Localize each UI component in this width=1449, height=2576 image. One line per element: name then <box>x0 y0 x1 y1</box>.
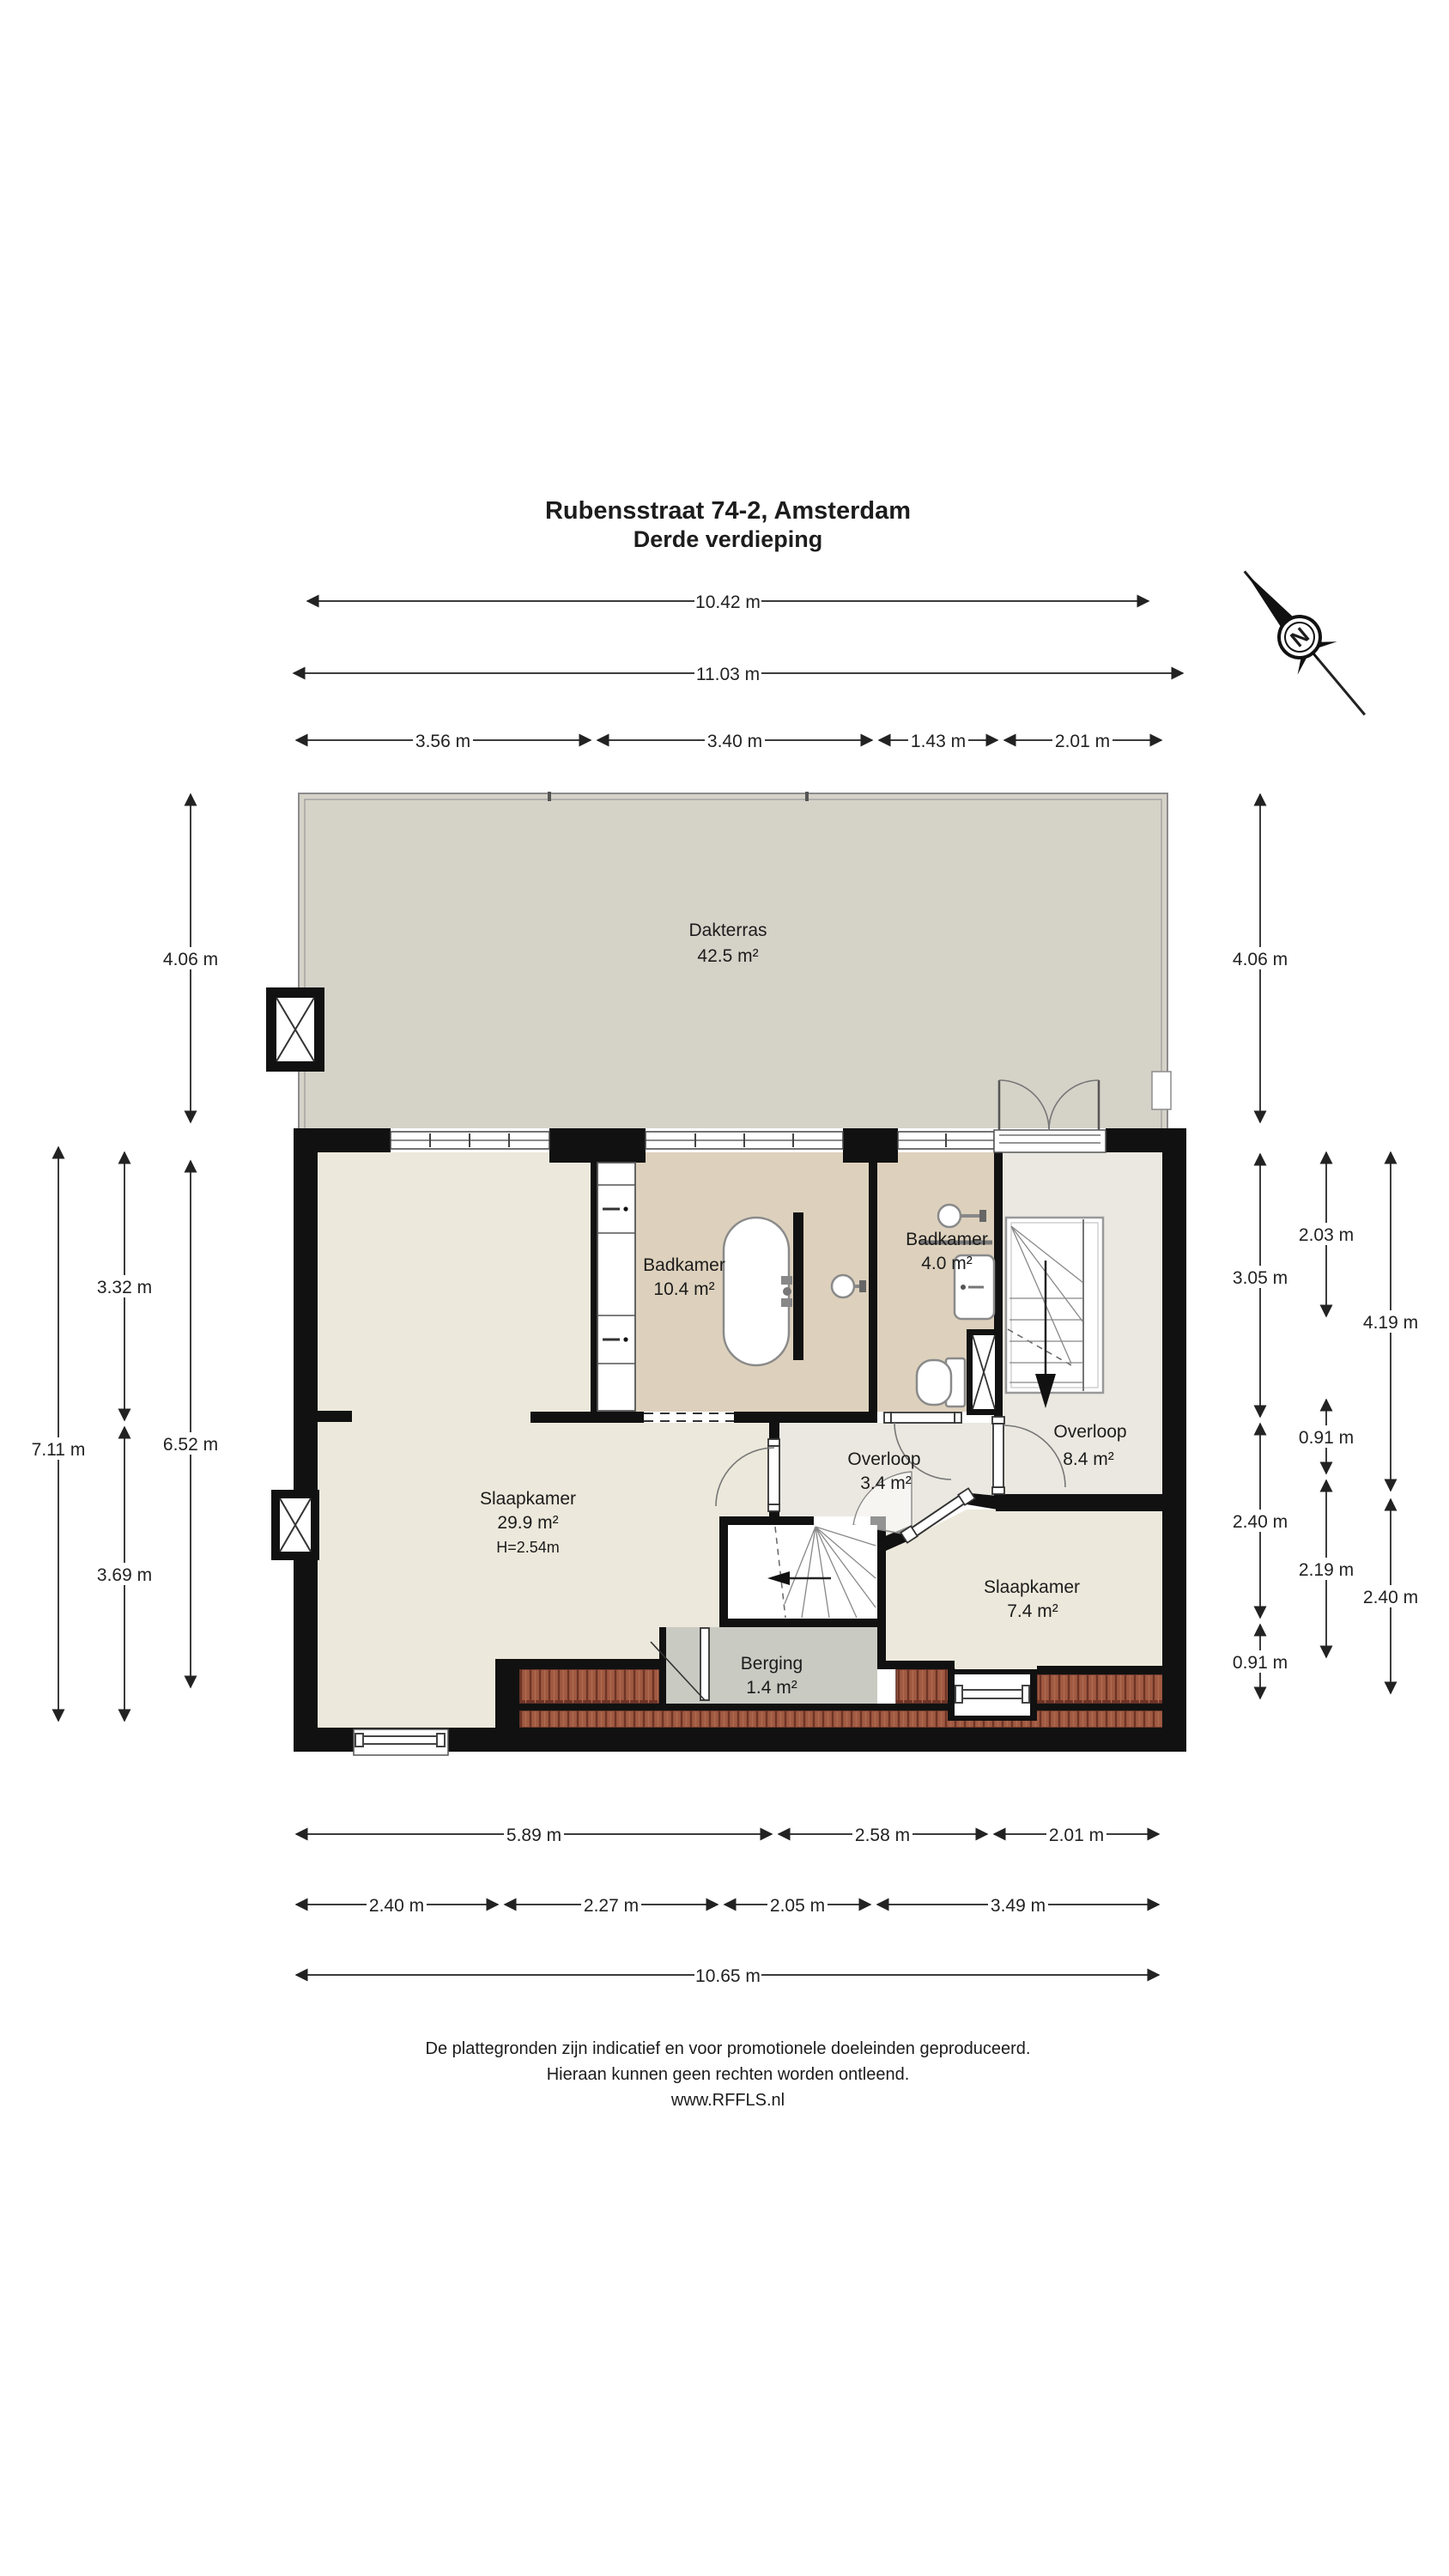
winder-stairs-icon <box>728 1525 877 1619</box>
dim-right-r1c: 0.91 m <box>1233 1653 1288 1673</box>
disclaimer-line2: Hieraan kunnen geen rechten worden ontle… <box>547 2065 910 2084</box>
dim-bottom-a2: 2.58 m <box>855 1826 910 1845</box>
badkamer-klein-label: Badkamer <box>906 1230 988 1249</box>
skylight-icon <box>266 987 324 1072</box>
floorplan-svg: Rubensstraat 74-2, Amsterdam Derde verdi… <box>0 0 1449 2576</box>
open-passage-dashed <box>644 1412 734 1423</box>
compass-north-icon: N <box>1225 555 1385 732</box>
dimensions-top: 10.42 m 11.03 m 3.56 m 3.40 m 1.43 m 2.0… <box>294 590 1183 751</box>
dim-bottom-b4: 3.49 m <box>991 1896 1046 1916</box>
dim-top-seg4: 2.01 m <box>1055 732 1110 751</box>
badkamer-groot-label: Badkamer <box>643 1255 725 1275</box>
badkamer-klein-area: 4.0 m² <box>921 1254 973 1273</box>
disclaimer: De plattegronden zijn indicatief en voor… <box>426 2039 1031 2110</box>
dim-right-terras: 4.06 m <box>1233 950 1288 969</box>
dim-left-totaal: 7.11 m <box>32 1440 86 1460</box>
dim-top-seg1: 3.56 m <box>415 732 470 751</box>
slaapkamer-groot-label: Slaapkamer <box>480 1489 576 1509</box>
dakterras-label: Dakterras <box>688 920 767 940</box>
dim-top-seg3: 1.43 m <box>911 732 966 751</box>
dim-right-r3a: 4.19 m <box>1363 1313 1418 1333</box>
toilet-icon <box>917 1358 965 1406</box>
dim-right-r3b: 2.40 m <box>1363 1588 1418 1607</box>
dim-top-seg2: 3.40 m <box>707 732 762 751</box>
slaapkamer-klein-area: 7.4 m² <box>1007 1601 1058 1621</box>
dim-bottom-b2: 2.27 m <box>584 1896 639 1916</box>
overloop-groot-label: Overloop <box>1053 1422 1126 1442</box>
dim-right-r2c: 2.19 m <box>1299 1560 1354 1580</box>
dim-right-r1b: 2.40 m <box>1233 1512 1288 1532</box>
railing-post <box>805 792 809 801</box>
title-address: Rubensstraat 74-2, Amsterdam <box>545 497 911 525</box>
dimensions-bottom: 5.89 m 2.58 m 2.01 m 2.40 m 2.27 m 2.05 … <box>296 1823 1159 1986</box>
dim-right-r2b: 0.91 m <box>1299 1428 1354 1448</box>
railing-post <box>548 792 551 801</box>
window-top-badkamer-groot <box>646 1132 843 1149</box>
berging-label: Berging <box>741 1654 803 1674</box>
dim-bottom-a1: 5.89 m <box>506 1826 561 1845</box>
window-left-wall <box>271 1490 319 1560</box>
dim-top-inner: 10.42 m <box>695 592 761 612</box>
dakterras-area: 42.5 m² <box>697 946 758 966</box>
dim-bottom-totaal: 10.65 m <box>695 1966 761 1986</box>
dim-left-onder: 3.69 m <box>97 1565 152 1585</box>
wardrobe-cabinets <box>597 1163 635 1411</box>
slaapkamer-klein-label: Slaapkamer <box>984 1577 1080 1597</box>
shower-screen-bar <box>793 1212 803 1360</box>
terrace-notch <box>1152 1072 1171 1109</box>
bathtub-icon <box>724 1218 792 1365</box>
badkamer-groot-area: 10.4 m² <box>653 1279 714 1299</box>
dim-right-r1a: 3.05 m <box>1233 1268 1288 1288</box>
window-bottom-slaapkamer <box>354 1729 448 1755</box>
berging-area: 1.4 m² <box>746 1678 797 1698</box>
dim-bottom-b1: 2.40 m <box>369 1896 424 1916</box>
dim-left-binnen: 6.52 m <box>163 1435 218 1455</box>
window-top-badkamer-klein <box>898 1132 994 1149</box>
overloop-klein-area: 3.4 m² <box>860 1473 912 1493</box>
shaft-icon <box>967 1329 1001 1415</box>
slaapkamer-groot-height: H=2.54m <box>496 1539 560 1556</box>
dakterras-room: Dakterras 42.5 m² <box>266 792 1171 1128</box>
disclaimer-website: www.RFFLS.nl <box>670 2091 785 2110</box>
dimensions-right: 4.06 m 3.05 m 2.40 m 0.91 m 2.03 m 0.91 … <box>1228 794 1423 1698</box>
slaapkamer-groot-area: 29.9 m² <box>497 1513 558 1533</box>
dim-left-boven: 3.32 m <box>97 1278 152 1297</box>
dim-bottom-b3: 2.05 m <box>770 1896 825 1916</box>
dim-right-r2a: 2.03 m <box>1299 1225 1354 1245</box>
dim-left-terras: 4.06 m <box>163 950 218 969</box>
overloop-groot-area: 8.4 m² <box>1063 1449 1114 1469</box>
dim-bottom-a3: 2.01 m <box>1049 1826 1104 1845</box>
window-dormer-slaapkamer-klein <box>948 1669 1037 1721</box>
disclaimer-line1: De plattegronden zijn indicatief en voor… <box>426 2039 1031 2058</box>
plan-title: Rubensstraat 74-2, Amsterdam Derde verdi… <box>545 497 911 552</box>
floorplan-page: Rubensstraat 74-2, Amsterdam Derde verdi… <box>0 0 1449 2576</box>
title-floor: Derde verdieping <box>634 526 823 552</box>
dimensions-left: 4.06 m 7.11 m 3.32 m 3.69 m 6.52 m <box>26 794 223 1721</box>
overloop-klein-label: Overloop <box>847 1449 920 1469</box>
window-top-slaapkamer <box>391 1132 549 1149</box>
dim-top-outer: 11.03 m <box>696 665 760 684</box>
stairs-down-icon <box>1006 1218 1103 1408</box>
